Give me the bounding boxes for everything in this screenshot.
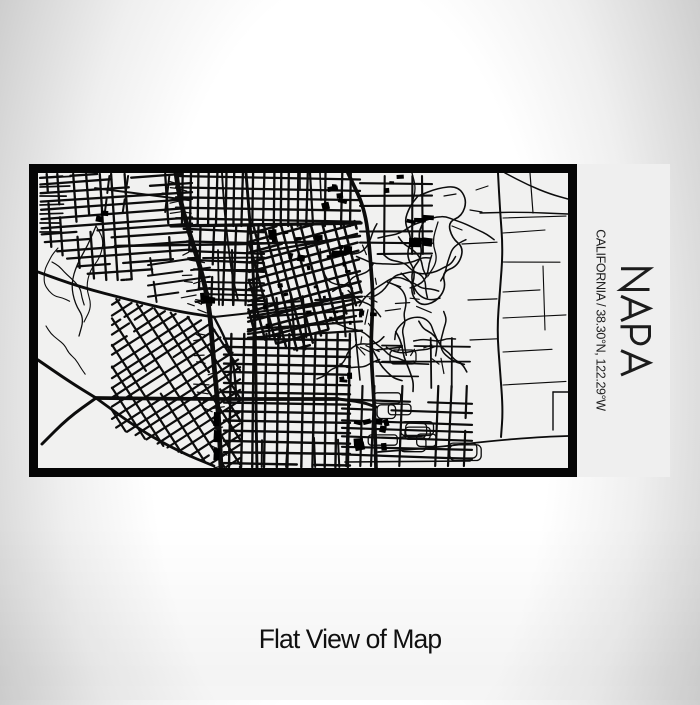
svg-text:CALIFORNIA / 38.30°N, 122.29°W: CALIFORNIA / 38.30°N, 122.29°W xyxy=(594,229,608,411)
svg-text:Flat View of Map: Flat View of Map xyxy=(259,624,442,654)
